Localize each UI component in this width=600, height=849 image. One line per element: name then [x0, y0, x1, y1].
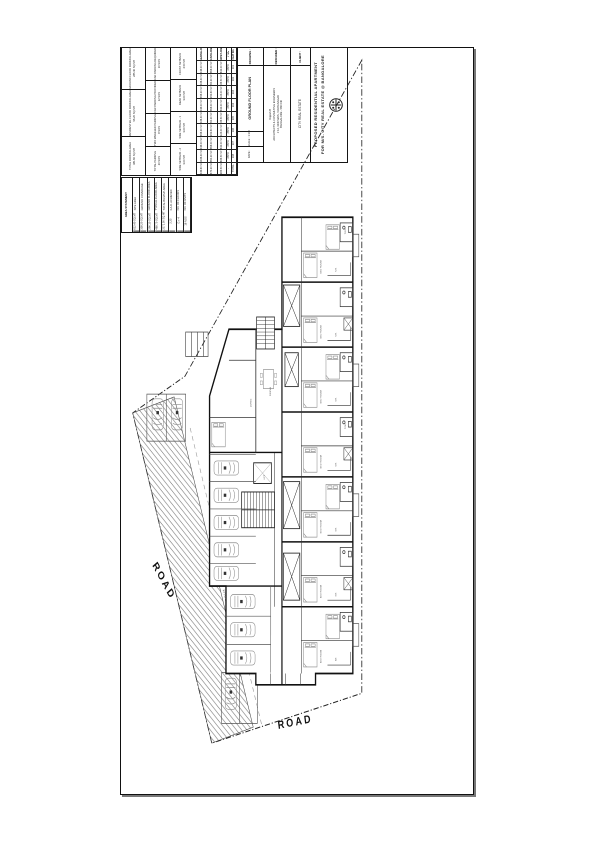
svg-text:KIT.: KIT.	[336, 267, 338, 272]
balconies	[353, 234, 359, 646]
svg-text:BED ROOM: BED ROOM	[321, 260, 323, 273]
building-outline	[210, 217, 353, 685]
drawing-sheet: GROUND FLOOR PARKING AREA285.40 SQ.MTRES…	[0, 0, 600, 849]
lift-label: LIFT	[264, 474, 266, 480]
svg-text:KIT.: KIT.	[336, 527, 338, 532]
svg-text:TOIL.: TOIL.	[345, 422, 347, 428]
svg-text:BED ROOM: BED ROOM	[321, 520, 323, 533]
room-label: LIVING	[250, 399, 253, 408]
svg-text:BED ROOM: BED ROOM	[321, 650, 323, 663]
site-plan: 6.0 MT WIDE DRIVE WAY	[120, 47, 473, 793]
entrance-porch	[186, 332, 208, 356]
main-staircase	[242, 492, 275, 528]
room-label: DINING	[269, 387, 272, 396]
svg-text:KIT.: KIT.	[336, 397, 338, 402]
svg-text:BED ROOM: BED ROOM	[321, 390, 323, 403]
svg-text:BED ROOM: BED ROOM	[321, 325, 323, 338]
staircase	[257, 317, 275, 349]
svg-text:BED ROOM: BED ROOM	[321, 585, 323, 598]
svg-text:KIT.: KIT.	[336, 462, 338, 467]
road-label-bottom: ROAD	[277, 713, 313, 732]
svg-text:BED ROOM: BED ROOM	[321, 455, 323, 468]
svg-text:KIT.: KIT.	[336, 657, 338, 662]
svg-text:TOIL.: TOIL.	[345, 228, 347, 234]
svg-text:KIT.: KIT.	[336, 592, 338, 597]
svg-text:KIT.: KIT.	[336, 332, 338, 337]
